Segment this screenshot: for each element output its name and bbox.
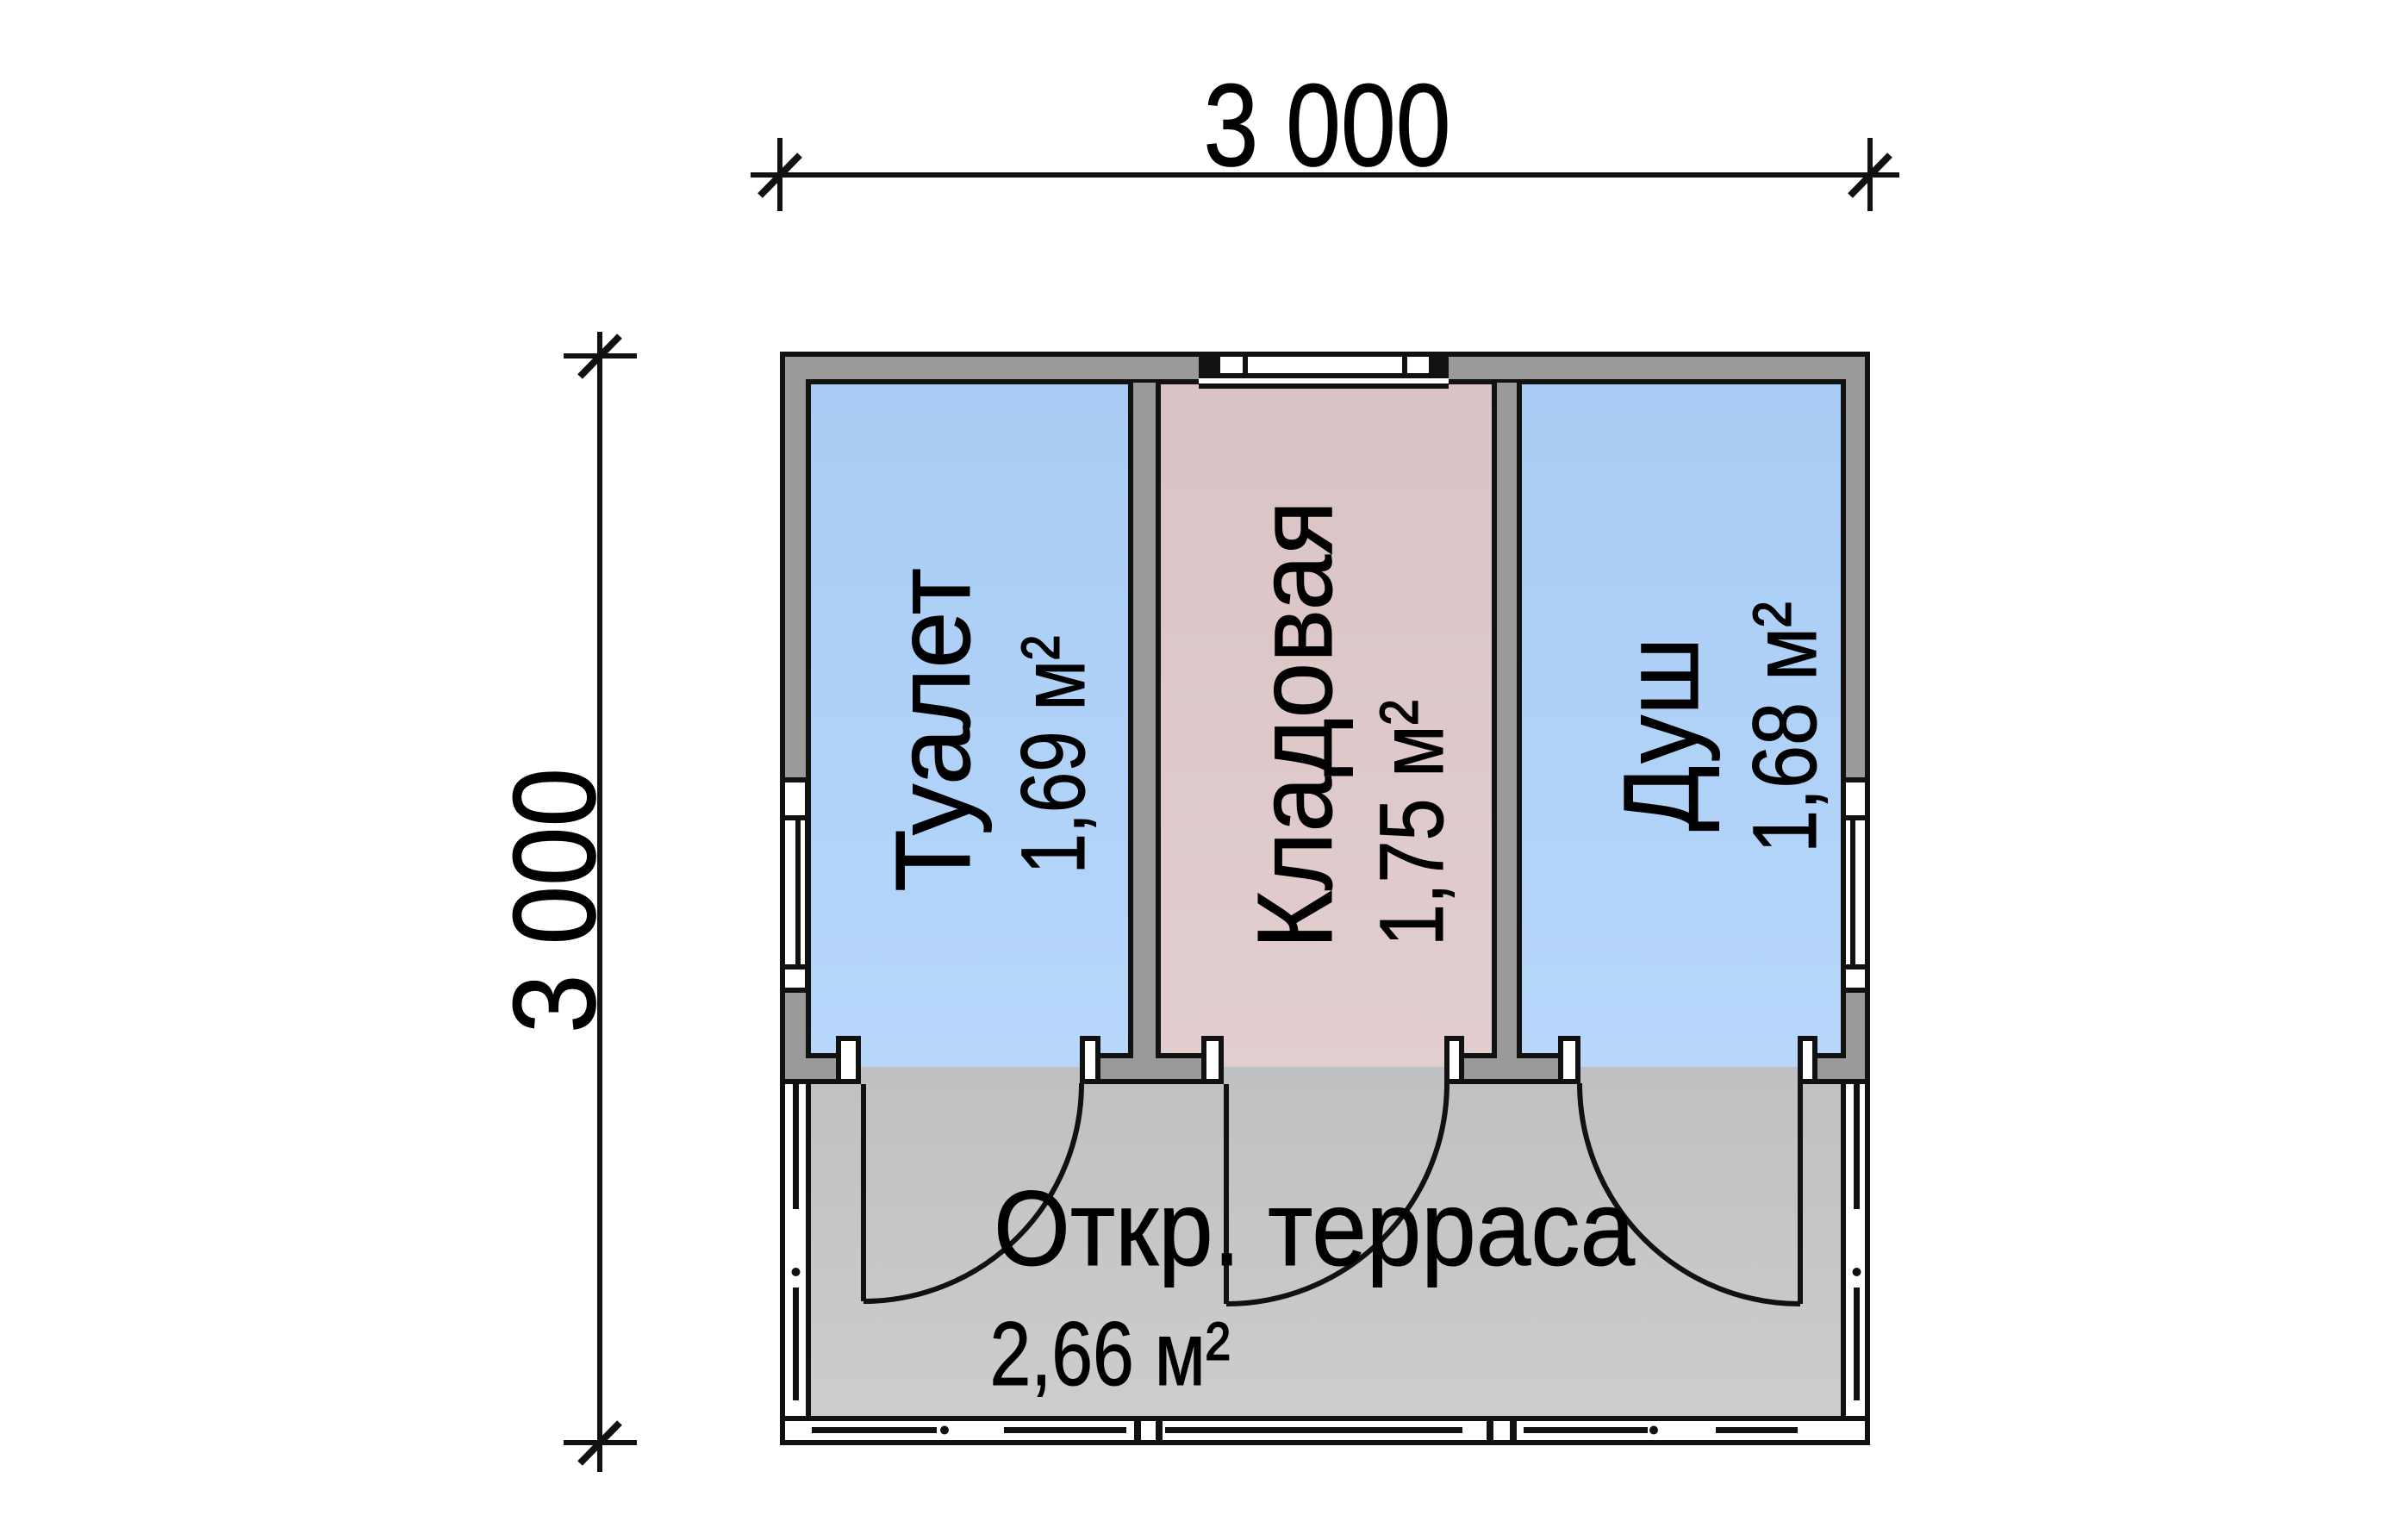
svg-text:1,68 м²: 1,68 м² bbox=[1735, 602, 1836, 853]
svg-text:Откр. терраса: Откр. терраса bbox=[994, 1170, 1636, 1288]
svg-text:Душ: Душ bbox=[1603, 638, 1721, 832]
svg-text:Туалет: Туалет bbox=[875, 568, 993, 892]
svg-text:3 000: 3 000 bbox=[489, 768, 620, 1033]
svg-text:3 000: 3 000 bbox=[1204, 59, 1451, 190]
svg-text:1,75 м²: 1,75 м² bbox=[1362, 700, 1462, 946]
svg-text:Кладовая: Кладовая bbox=[1237, 501, 1355, 949]
svg-text:2,66 м²: 2,66 м² bbox=[990, 1304, 1231, 1405]
svg-text:1,69 м²: 1,69 м² bbox=[1003, 636, 1104, 875]
